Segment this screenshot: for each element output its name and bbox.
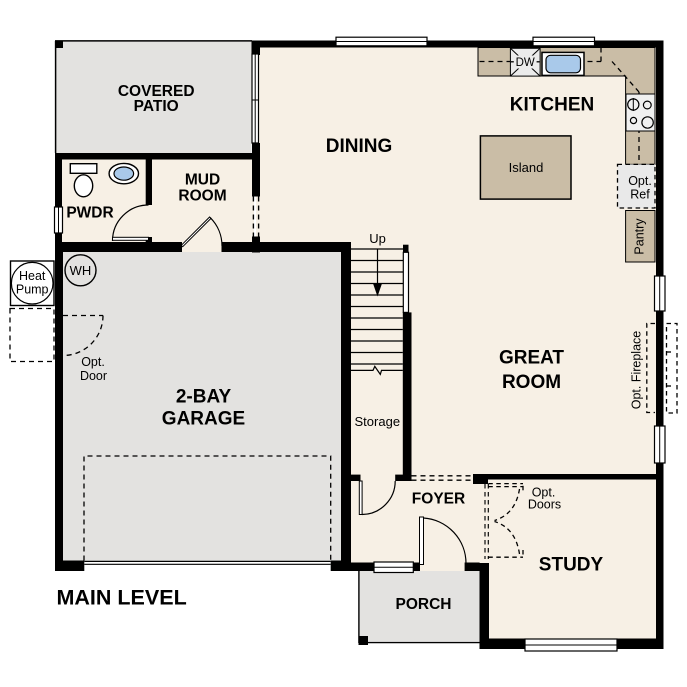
svg-text:Opt. Fireplace: Opt. Fireplace [630,331,644,410]
svg-text:Doors: Doors [528,497,561,511]
svg-text:FOYER: FOYER [412,491,465,508]
svg-text:Pantry: Pantry [633,218,647,255]
svg-text:GARAGE: GARAGE [162,409,245,430]
svg-text:KITCHEN: KITCHEN [510,95,594,116]
svg-text:PORCH: PORCH [396,596,452,613]
svg-text:ROOM: ROOM [502,372,561,393]
svg-text:WH: WH [70,263,92,278]
svg-text:Pump: Pump [16,282,49,296]
svg-text:DW: DW [516,57,535,69]
svg-text:Heat: Heat [19,269,46,283]
svg-text:PWDR: PWDR [66,204,113,221]
svg-text:MAIN LEVEL: MAIN LEVEL [57,585,187,609]
svg-text:Storage: Storage [355,414,401,429]
svg-text:MUD: MUD [185,172,220,189]
svg-text:DINING: DINING [326,136,393,157]
svg-text:Up: Up [369,231,386,246]
svg-text:Island: Island [509,160,544,175]
svg-text:STUDY: STUDY [539,555,604,576]
svg-text:2-BAY: 2-BAY [176,387,232,408]
svg-text:Opt.: Opt. [628,174,652,188]
svg-text:PATIO: PATIO [134,98,179,115]
svg-text:Opt.: Opt. [81,355,105,369]
svg-text:Ref: Ref [630,187,650,201]
svg-text:GREAT: GREAT [499,348,564,369]
svg-text:Door: Door [80,369,107,383]
svg-text:ROOM: ROOM [178,188,226,205]
